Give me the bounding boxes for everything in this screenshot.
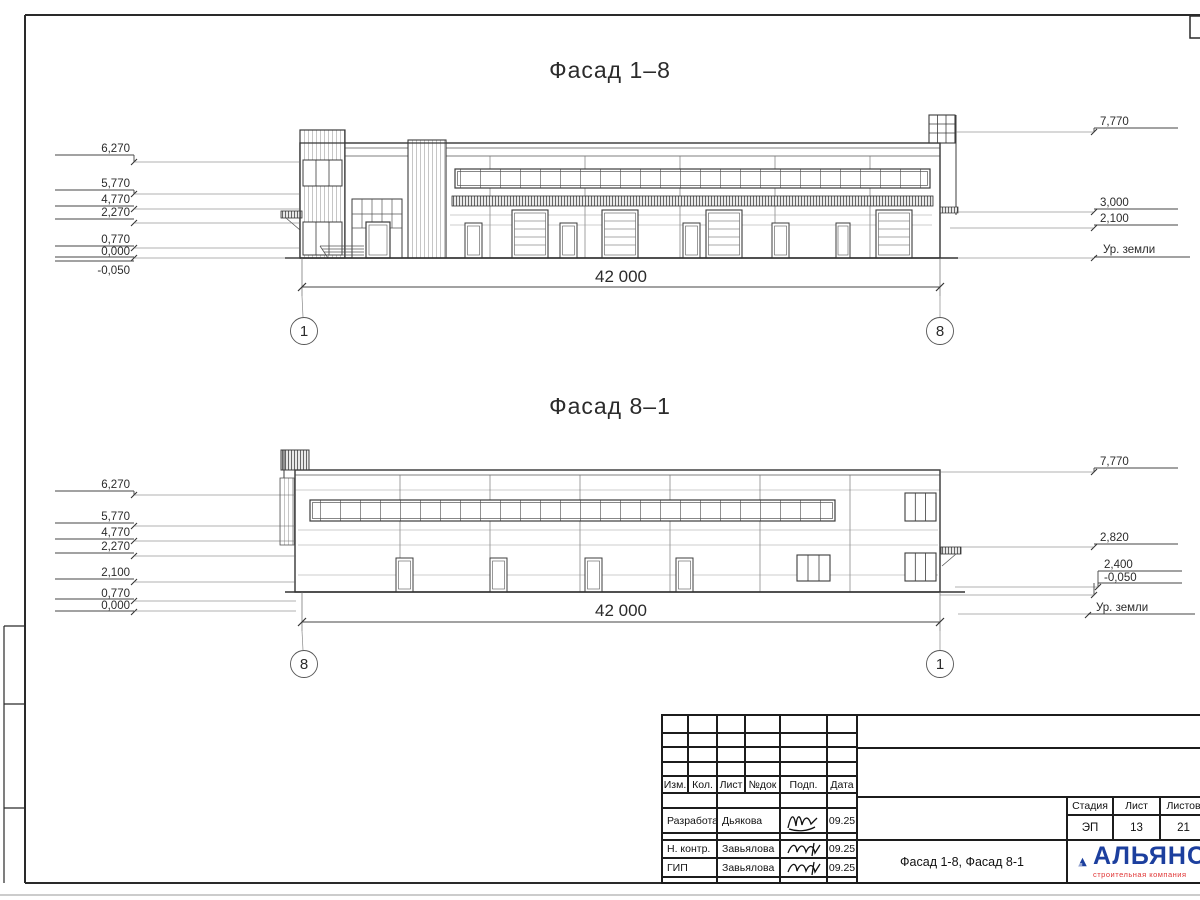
svg-text:2,270: 2,270 bbox=[101, 207, 130, 219]
dimension-42000: 42 000 bbox=[298, 592, 944, 631]
elevation-marks-right: 7,770 2,820 2,400 -0,050 Ур. земли bbox=[940, 456, 1195, 618]
svg-text:Ур. земли: Ур. земли bbox=[1096, 602, 1148, 614]
facade-title: Фасад 1–8 bbox=[549, 57, 671, 83]
svg-text:7,770: 7,770 bbox=[1100, 456, 1129, 468]
pylon bbox=[408, 140, 446, 258]
dimension-42000: 42 000 bbox=[298, 258, 944, 296]
svg-text:2,100: 2,100 bbox=[1100, 213, 1129, 225]
drawing-sheet: Фасад 1–8 bbox=[0, 0, 1200, 900]
svg-text:0,000: 0,000 bbox=[101, 246, 130, 258]
facade-title: Фасад 8–1 bbox=[549, 393, 671, 419]
svg-text:7,770: 7,770 bbox=[1100, 116, 1129, 128]
svg-text:Ур. земли: Ур. земли bbox=[1103, 244, 1155, 256]
title-block-border bbox=[661, 714, 1200, 884]
axis-bubbles: 8 1 bbox=[291, 631, 954, 678]
svg-text:8: 8 bbox=[300, 656, 308, 673]
svg-text:2,270: 2,270 bbox=[101, 541, 130, 553]
svg-text:0,770: 0,770 bbox=[101, 234, 130, 246]
elevation-marks-left: 6,270 5,770 4,770 2,270 2,100 0,770 0,00… bbox=[55, 479, 296, 615]
canopy-right bbox=[941, 547, 961, 566]
canopy-left bbox=[281, 211, 302, 230]
svg-text:0,000: 0,000 bbox=[101, 600, 130, 612]
svg-text:2,100: 2,100 bbox=[101, 567, 130, 579]
ribbon-window bbox=[310, 500, 835, 521]
svg-text:5,770: 5,770 bbox=[101, 511, 130, 523]
svg-text:0,770: 0,770 bbox=[101, 588, 130, 600]
svg-text:-0,050: -0,050 bbox=[97, 265, 130, 277]
svg-text:4,770: 4,770 bbox=[101, 527, 130, 539]
svg-text:3,000: 3,000 bbox=[1100, 197, 1129, 209]
svg-text:5,770: 5,770 bbox=[101, 178, 130, 190]
svg-text:42 000: 42 000 bbox=[595, 601, 647, 620]
facade-8-1-drawing: Фасад 8–1 bbox=[55, 393, 1195, 678]
elevation-marks-right: 7,770 3,000 2,100 Ур. земли bbox=[950, 116, 1190, 261]
ribbon-window bbox=[455, 169, 930, 188]
svg-text:42 000: 42 000 bbox=[595, 267, 647, 286]
elevation-marks-left: 6,270 5,770 4,770 2,270 0,770 0,000 -0,0… bbox=[55, 143, 300, 277]
svg-text:8: 8 bbox=[936, 323, 944, 340]
axis-bubbles: 1 8 bbox=[291, 296, 954, 345]
svg-text:2,820: 2,820 bbox=[1100, 532, 1129, 544]
svg-text:1: 1 bbox=[300, 323, 308, 340]
svg-text:4,770: 4,770 bbox=[101, 194, 130, 206]
svg-text:2,400: 2,400 bbox=[1104, 559, 1133, 571]
fascia-band bbox=[452, 196, 933, 206]
svg-text:-0,050: -0,050 bbox=[1104, 572, 1137, 584]
facade-1-8-drawing: Фасад 1–8 bbox=[55, 57, 1190, 345]
left-tower bbox=[300, 130, 345, 258]
svg-text:1: 1 bbox=[936, 656, 944, 673]
svg-text:6,270: 6,270 bbox=[101, 143, 130, 155]
svg-text:6,270: 6,270 bbox=[101, 479, 130, 491]
